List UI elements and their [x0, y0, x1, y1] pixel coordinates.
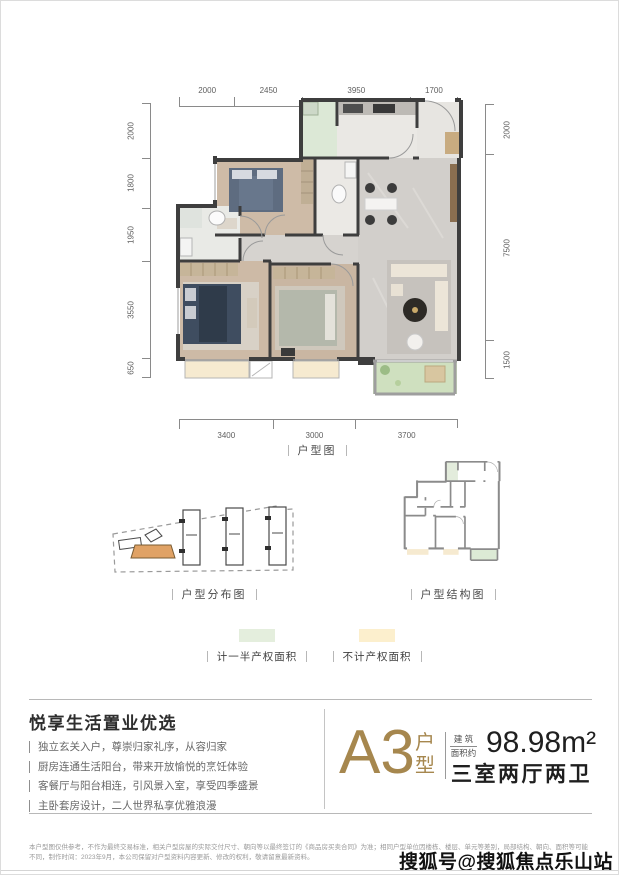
- distribution-caption: 户型分布图: [83, 586, 345, 602]
- unit-suffix-char: 型: [415, 755, 435, 778]
- dim-label: 2450: [235, 86, 301, 95]
- area-label-line2: 面积约: [450, 748, 477, 758]
- page-bottom-rule: [1, 870, 619, 871]
- floor-plan-caption: 户型图: [171, 442, 463, 458]
- area-value: 98.98m²: [486, 727, 596, 759]
- floor-plan-caption-text: 户型图: [298, 442, 337, 458]
- area-label: 建 筑 面积约: [450, 734, 477, 758]
- selling-point: 独立玄关入户，尊崇归家礼序，从容归家: [29, 741, 259, 753]
- dim-label: 2000: [127, 116, 136, 146]
- selling-point: 厨房连通生活阳台，带来开放愉悦的烹饪体验: [29, 761, 259, 773]
- legend-label: 计一半产权面积: [207, 649, 308, 664]
- unit-structure-diagram: [403, 461, 503, 565]
- dim-segment: 3000: [273, 419, 356, 429]
- dim-label: 3950: [303, 86, 410, 95]
- divider-top: [29, 699, 592, 700]
- legend-swatch-green: [239, 629, 275, 642]
- legend-half-property: 计一半产权面积: [192, 629, 322, 664]
- dim-label: 1700: [411, 86, 457, 95]
- floorplan-flyer-page: 2000 2450 3950 1700 2000 1800 1950 3550 …: [0, 0, 619, 875]
- divider-vertical-area: [445, 732, 446, 779]
- floor-plan-rendering: [173, 98, 463, 396]
- divider-bottom: [29, 813, 592, 814]
- structure-caption: 户型结构图: [403, 586, 503, 602]
- dim-label: 1950: [127, 220, 136, 250]
- dim-label: 3550: [127, 295, 136, 325]
- floor-plan-caption-row: 户型图: [171, 442, 463, 458]
- dim-label: 7500: [503, 233, 512, 263]
- structure-caption-row: 户型结构图: [403, 586, 503, 602]
- dim-label: 2000: [180, 86, 234, 95]
- dim-segment: 650: [142, 358, 151, 377]
- dimension-chain-left: 2000 1800 1950 3550 650: [142, 103, 151, 378]
- dim-segment: 7500: [485, 154, 494, 340]
- legend-label-text: 计一半产权面积: [217, 649, 298, 664]
- legend-no-property: 不计产权面积: [312, 629, 442, 664]
- dim-segment: 3700: [355, 419, 457, 429]
- selling-point: 主卧套房设计，二人世界私享优雅浪漫: [29, 800, 259, 812]
- legend-swatch-yellow: [359, 629, 395, 642]
- dimension-chain-right: 2000 7500 1500: [485, 104, 494, 379]
- dim-label: 1800: [127, 168, 136, 198]
- legend-label-text: 不计产权面积: [343, 649, 412, 664]
- dim-label: 2000: [503, 115, 512, 145]
- unit-name: A3: [339, 724, 415, 782]
- selling-point: 客餐厅与阳台相连，引风景入室，享受四季盛景: [29, 780, 259, 792]
- dim-label: 1500: [503, 345, 512, 375]
- selling-points-list: 独立玄关入户，尊崇归家礼序，从容归家 厨房连通生活阳台，带来开放愉悦的烹饪体验 …: [29, 741, 259, 819]
- distribution-caption-text: 户型分布图: [182, 586, 247, 602]
- section-title: 悦享生活置业优选: [29, 709, 177, 734]
- dimension-chain-bottom: 3400 3000 3700: [179, 419, 458, 429]
- dim-label: 650: [127, 353, 136, 383]
- area-label-line1: 建 筑: [450, 734, 477, 744]
- dim-segment: 1800: [142, 158, 151, 208]
- dim-segment: 2000: [485, 104, 494, 154]
- unit-name-suffix: 户 型: [415, 732, 435, 778]
- unit-suffix-char: 户: [415, 732, 435, 755]
- dim-label: 3700: [356, 431, 457, 440]
- distribution-caption-row: 户型分布图: [83, 586, 345, 602]
- room-configuration: 三室两厅两卫: [451, 758, 592, 788]
- dim-segment: 2000: [142, 103, 151, 158]
- site-distribution-diagram: [83, 477, 345, 589]
- area-label-divider: [450, 746, 477, 747]
- structure-caption-text: 户型结构图: [421, 586, 486, 602]
- dim-label: 3000: [274, 431, 356, 440]
- dim-segment: 1950: [142, 208, 151, 262]
- legend-label: 不计产权面积: [333, 649, 422, 664]
- divider-vertical-main: [324, 709, 325, 809]
- dim-segment: 3400: [179, 419, 273, 429]
- dim-label: 3400: [180, 431, 273, 440]
- dim-segment: 3550: [142, 261, 151, 358]
- dim-segment: 1500: [485, 340, 494, 378]
